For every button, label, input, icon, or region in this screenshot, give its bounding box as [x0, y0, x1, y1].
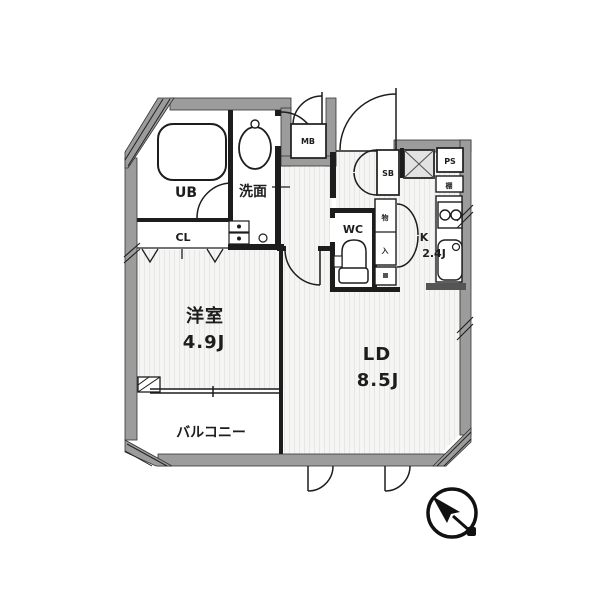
living-dining-size: 8.5J — [357, 370, 400, 391]
shelf-label: 棚 — [446, 181, 453, 190]
balcony-label: バルコニー — [176, 425, 246, 441]
closet-label: CL — [175, 231, 190, 244]
wall-room-divider — [279, 248, 283, 454]
washbasin-faucet-icon — [251, 120, 259, 128]
washbasin-icon — [239, 127, 271, 169]
ld-window-arc-2 — [385, 466, 410, 491]
toilet-label: WC — [343, 223, 363, 236]
counter-base — [426, 283, 466, 290]
balcony-floor — [137, 390, 284, 454]
living-dining-label: LD — [363, 344, 391, 365]
wall-wc-top — [330, 208, 377, 213]
wall-bottom — [158, 454, 446, 466]
wall-top-left — [170, 98, 291, 110]
washer-dot-1 — [237, 225, 241, 229]
hallway-floor — [281, 166, 332, 250]
storage-label-top: 物 — [382, 213, 389, 222]
toilet-tank-icon — [339, 268, 368, 283]
sink-faucet-icon — [453, 244, 460, 251]
meter-box-label: MB — [301, 137, 315, 146]
toilet-bowl-icon — [342, 240, 366, 270]
entrance-door-arc — [340, 94, 396, 150]
shoe-box-label: SB — [382, 169, 394, 178]
floor-plan-drawing: 洋室 4.9J LD 8.5J K 2.4J バルコニー UB 洗面 CL WC… — [0, 0, 608, 603]
washroom-label: 洗面 — [239, 183, 267, 200]
north-arrow-icon — [428, 489, 476, 537]
wall-wc-bottom — [330, 287, 400, 292]
mb-door-arc — [293, 96, 322, 125]
washer-dot-2 — [237, 237, 241, 241]
storage-small-mark — [383, 273, 388, 278]
wall-left — [125, 158, 137, 440]
drain-icon — [259, 234, 267, 242]
wall-hall-washroom-b — [275, 146, 281, 246]
western-room-size: 4.9J — [183, 332, 226, 353]
paper-holder-icon — [334, 256, 342, 267]
storage-label-bottom: 入 — [381, 247, 389, 255]
wall-hall-entry — [330, 152, 336, 198]
kitchen-label: K — [420, 231, 429, 244]
western-room-label: 洋室 — [186, 305, 224, 327]
kitchen-size: 2.4J — [422, 247, 446, 260]
pipe-space-label: PS — [444, 157, 456, 166]
unit-bath-label: UB — [175, 185, 197, 201]
wall-wc-left-a — [330, 208, 335, 218]
wall-ub-washroom — [228, 110, 233, 222]
ld-window-arc-1 — [308, 466, 333, 491]
wall-hall-washroom-a — [275, 110, 281, 116]
bathtub-icon — [158, 124, 226, 180]
floor-plan-canvas: 洋室 4.9J LD 8.5J K 2.4J バルコニー UB 洗面 CL WC… — [0, 0, 608, 603]
wall-closet-top — [137, 218, 232, 222]
